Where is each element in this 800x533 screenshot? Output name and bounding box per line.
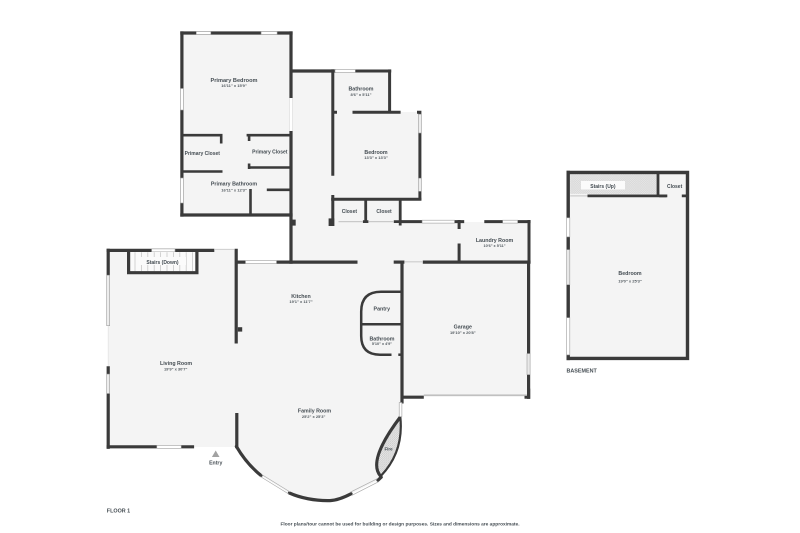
svg-text:16'11" x 12'3": 16'11" x 12'3" [221,187,247,192]
svg-text:19'10" x 20'8": 19'10" x 20'8" [450,330,476,335]
svg-text:8'6" x 5'11": 8'6" x 5'11" [350,92,371,97]
svg-text:Entry: Entry [209,460,222,466]
svg-text:FLOOR 1: FLOOR 1 [107,509,130,515]
svg-text:10'6" x 5'11": 10'6" x 5'11" [483,244,505,248]
svg-text:Fire: Fire [384,447,393,452]
svg-text:Closet: Closet [376,209,392,215]
svg-text:Bedroom: Bedroom [618,271,642,277]
svg-text:5'10" x 4'9": 5'10" x 4'9" [372,342,392,346]
svg-text:Pantry: Pantry [374,306,391,312]
svg-text:Primary Closet: Primary Closet [252,149,288,155]
svg-text:Stairs (Down): Stairs (Down) [146,260,179,266]
svg-text:19'0" x 25'3": 19'0" x 25'3" [618,278,642,283]
svg-text:Stairs (Up): Stairs (Up) [590,184,616,190]
svg-text:Closet: Closet [342,209,358,215]
svg-text:Floor plans/tour cannot be use: Floor plans/tour cannot be used for buil… [280,521,519,527]
svg-text:19'9" x 30'7": 19'9" x 30'7" [164,366,188,371]
svg-text:25'2" x 25'3": 25'2" x 25'3" [302,414,326,419]
svg-text:19'1" x 11'7": 19'1" x 11'7" [289,299,312,304]
svg-text:BASEMENT: BASEMENT [567,369,598,375]
svg-text:13'3" x 13'3": 13'3" x 13'3" [364,155,388,160]
svg-text:16'11" x 15'9": 16'11" x 15'9" [221,83,247,88]
svg-text:Primary Closet: Primary Closet [185,151,221,157]
svg-text:Closet: Closet [667,184,683,190]
